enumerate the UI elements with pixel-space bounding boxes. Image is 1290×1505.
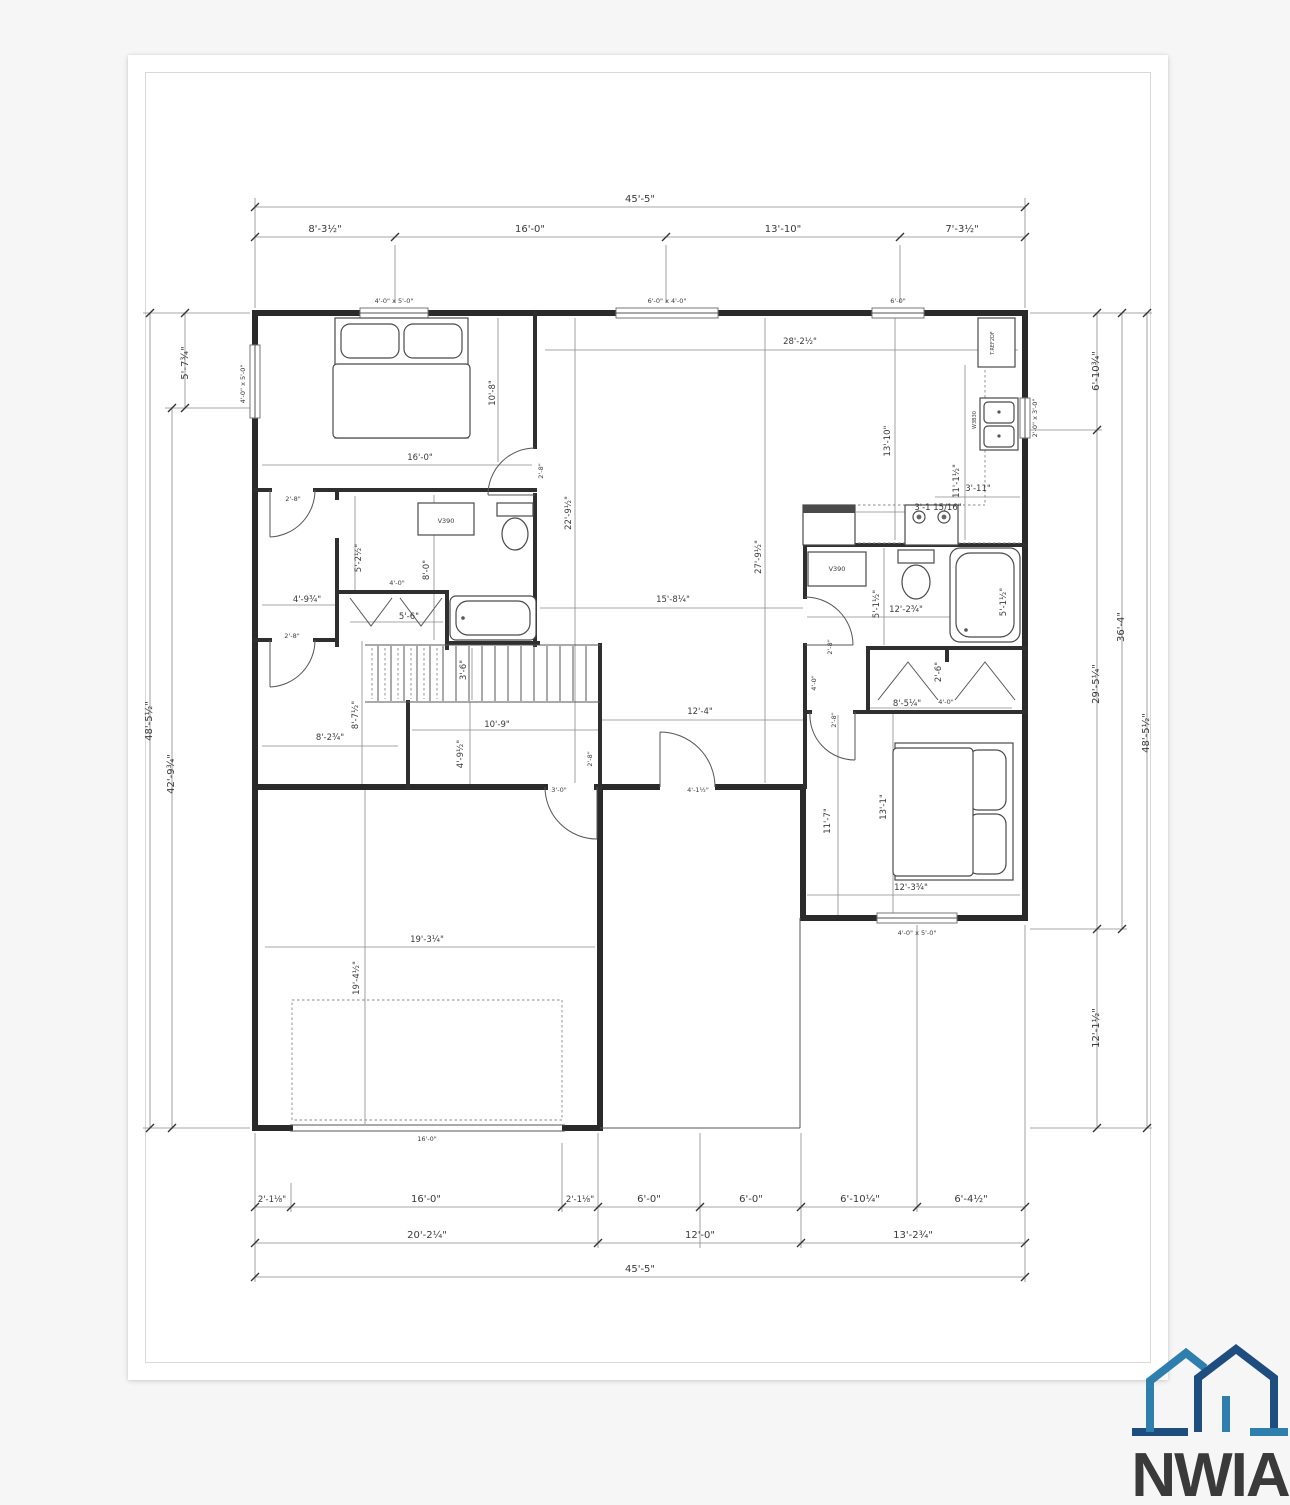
dim-stairs-d4: 4'-9½" — [456, 740, 466, 768]
toilet1-bowl — [502, 518, 528, 550]
bath2 — [808, 548, 1020, 642]
toilet2-tank — [898, 550, 934, 563]
dim-bath1-door: 2'-8" — [285, 495, 300, 503]
dim-right-total: 48'-5½" — [1140, 713, 1152, 753]
dim-garage-w: 19'-3¼" — [410, 935, 444, 945]
dim-bottom-r2b: 12'-0" — [685, 1230, 715, 1241]
dim-right-bottom: 12'-1½" — [1090, 1008, 1102, 1048]
dim-top-seg3: 13'-10" — [765, 224, 801, 235]
dim-garage-door: 16'-0" — [417, 1135, 437, 1143]
counter-edge — [803, 505, 855, 513]
dim-great-w: 28'-2½" — [783, 337, 817, 347]
dim-bed2-door: 2'-8" — [830, 712, 838, 727]
porch — [600, 918, 800, 1128]
dim-bath2-w: 12'-2¾" — [889, 605, 923, 615]
dim-bath2-closet-w: 8'-5¼" — [893, 699, 921, 709]
dim-garage-entry-door: 3'-0" — [551, 786, 566, 794]
dim-kitchen-d2: 3'-1 15/16" — [914, 503, 961, 513]
pillow — [404, 324, 462, 358]
dim-top-seg4: 7'-3½" — [945, 223, 978, 235]
dim-top-total: 45'-5" — [625, 194, 655, 205]
pillow — [341, 324, 399, 358]
dim-kitchen-h: 13'-10" — [883, 425, 893, 456]
toilet1-tank — [497, 503, 533, 516]
window-label-top2: 6'-0" x 4'-0" — [648, 297, 687, 305]
bath1 — [418, 503, 536, 640]
dim-bottom-s7: 6'-4½" — [954, 1193, 987, 1205]
dim-bath1-d2: 8'-0" — [422, 560, 432, 580]
dim-master-w: 16'-0" — [407, 453, 433, 463]
vanity1-label: V390 — [438, 517, 455, 525]
dim-great-h1: 22'-9½" — [564, 496, 574, 530]
dim-stairs-d2: 8'-2¾" — [316, 733, 344, 743]
dim-stairs-w: 3'-6" — [459, 660, 469, 680]
dim-bath1-closet-d: 4'-0" — [389, 579, 404, 587]
dim-bath2-hall: 4'-0" — [810, 675, 818, 690]
dim-bath1-d3: 4'-9¾" — [293, 595, 321, 605]
refrigerator — [978, 318, 1015, 367]
dim-master-door: 2'-8" — [537, 463, 545, 478]
master-bed — [333, 318, 470, 438]
fridge-label: T.REF2DF — [990, 331, 996, 356]
dim-bath2-closet-d: 4'-0" — [938, 698, 953, 706]
bed2-bed — [893, 743, 1013, 880]
dim-left-inner: 42'-9¾" — [166, 754, 177, 794]
dim-entry-door: 4'-1½" — [687, 786, 709, 794]
blanket — [333, 364, 470, 438]
dim-kitchen-counter: 11'-1½" — [952, 464, 962, 498]
window-label-top3: 6'-0" — [890, 297, 905, 305]
logo-houses-icon — [1132, 1349, 1288, 1432]
doors — [270, 448, 855, 839]
dim-bottom-s2: 16'-0" — [411, 1194, 441, 1205]
dim-right-top: 6'-10¾" — [1091, 351, 1102, 391]
dim-great-h2: 27'-9½" — [754, 540, 764, 574]
dim-bath2-h1: 5'-1½" — [872, 590, 882, 618]
dim-left-total: 48'-5½" — [143, 701, 155, 741]
dim-right-mid: 29'-5¼" — [1090, 664, 1102, 704]
dim-great-mid: 15'-8¼" — [656, 595, 690, 605]
toilet2-bowl — [902, 565, 930, 599]
dim-left-top: 5'-7¾" — [180, 346, 191, 379]
dim-top-seg1: 8'-3½" — [308, 223, 341, 235]
floor-plan: 45'-5" 8'-3½" 16'-0" 13'-10" 7'-3½" 4'-0… — [0, 0, 1290, 1505]
dim-bottom-s6: 6'-10¼" — [840, 1193, 880, 1205]
dim-bath1-d1: 5'-2½" — [354, 544, 364, 572]
tub1-inner — [456, 601, 530, 635]
window-label-left: 4'-0" x 5'-0" — [239, 365, 247, 404]
dim-bath2-door: 2'-8" — [826, 639, 834, 654]
dim-bottom-total: 45'-5" — [625, 1264, 655, 1275]
dim-bath1-closet-w: 5'-6" — [399, 612, 419, 622]
dim-bottom-s3: 2'-1⅛" — [566, 1195, 594, 1205]
stairs — [365, 645, 600, 702]
dim-bed2-h2: 13'-1" — [879, 794, 889, 820]
dim-kitchen-d1: 3'-11" — [965, 484, 991, 494]
sink-label: W3B30 — [972, 411, 978, 429]
dim-great-hall: 12'-4" — [687, 707, 713, 717]
window-label-top1: 4'-0" x 5'-0" — [375, 297, 414, 305]
dim-bath1-door2: 2'-8" — [284, 632, 299, 640]
interior-text: 16'-0" 10'-8" 2'-8" 28'-2½" 22'-9½" 27'-… — [284, 331, 1009, 1143]
dim-bottom-r2c: 13'-2¾" — [893, 1230, 933, 1241]
vanity2-label: V390 — [829, 565, 846, 573]
dim-bed2-h1: 11'-7" — [823, 808, 833, 834]
dim-bottom-r2a: 20'-2¼" — [407, 1229, 447, 1241]
pillow — [968, 750, 1006, 810]
nwia-logo: NWIA — [1130, 1336, 1290, 1505]
logo-text: NWIA — [1131, 1441, 1290, 1505]
dim-stairs-d3: 10'-9" — [484, 720, 510, 730]
kitchen — [803, 318, 1020, 545]
dim-right-inner: 36'-4" — [1116, 612, 1127, 642]
dim-garage-h: 19'-4½" — [352, 961, 362, 995]
dim-bath2-h2: 5'-1½" — [999, 588, 1009, 616]
dim-top-seg2: 16'-0" — [515, 224, 545, 235]
dim-bottom-s1: 2'-1⅛" — [258, 1195, 286, 1205]
garage — [290, 1000, 565, 1131]
pillow — [968, 814, 1006, 874]
dim-bottom-s4: 6'-0" — [637, 1194, 661, 1205]
dim-master-h: 10'-8" — [488, 380, 498, 406]
dim-bath2-closet: 2'-6" — [934, 662, 944, 682]
blanket — [893, 748, 973, 876]
dim-stairs-d1: 8'-7½" — [351, 701, 361, 729]
window-label-bed2: 4'-0" x 5'-0" — [898, 929, 937, 937]
dim-bed2-w: 12'-3¾" — [894, 883, 928, 893]
dim-stairs-door2: 2'-8" — [586, 751, 594, 766]
dim-bottom-s5: 6'-0" — [739, 1194, 763, 1205]
window-label-right: 2'-0" x 3'-0" — [1031, 399, 1039, 438]
